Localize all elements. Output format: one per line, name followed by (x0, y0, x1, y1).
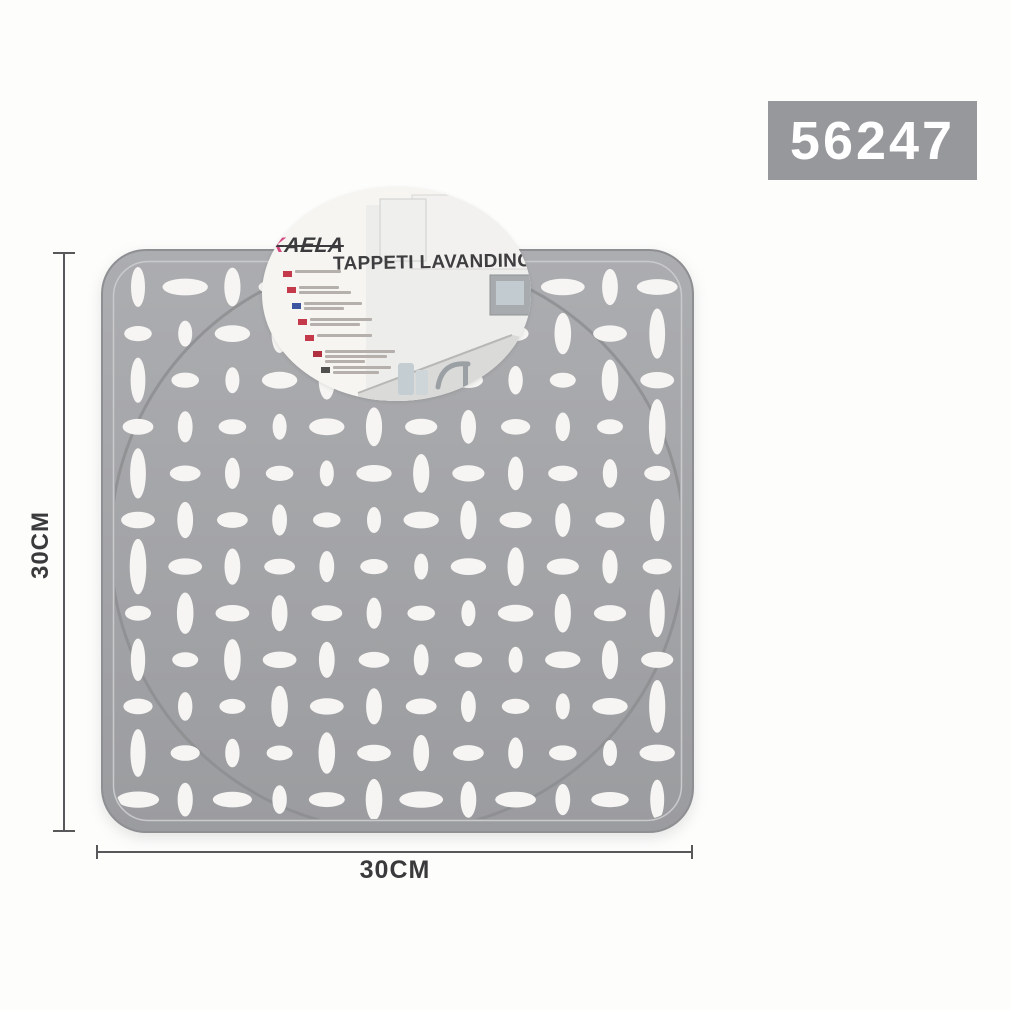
fine-print-lines (310, 318, 372, 328)
width-dimension-right-tick (691, 845, 693, 859)
flag-icon (313, 351, 322, 357)
fine-print-lines (333, 366, 391, 376)
card-info-line (321, 366, 391, 376)
fine-print-lines (299, 286, 351, 296)
flag-icon (305, 335, 314, 341)
product-code: 56247 (790, 110, 955, 172)
flag-icon (283, 271, 292, 277)
width-dimension-line (97, 851, 692, 853)
height-dimension-bottom-tick (53, 830, 75, 832)
flag-icon (287, 287, 296, 293)
height-dimension-line (63, 253, 65, 832)
card-info-line (283, 270, 341, 277)
height-dimension-label: 30CM (27, 500, 55, 590)
flag-icon (321, 367, 330, 373)
fine-print-lines (295, 270, 341, 275)
product-label-card: KAELA TAPPETI LAVANDINO (262, 187, 531, 401)
fine-print-lines (325, 350, 395, 365)
card-info-line (292, 302, 362, 312)
card-info-line (287, 286, 351, 296)
card-info-line (305, 334, 372, 341)
width-dimension-left-tick (96, 845, 98, 859)
height-dimension-top-tick (53, 252, 75, 254)
fine-print-lines (317, 334, 372, 339)
flag-icon (292, 303, 301, 309)
product-code-badge: 56247 (768, 101, 977, 180)
card-info-line (298, 318, 372, 328)
fine-print-lines (304, 302, 362, 312)
card-info-line (313, 350, 395, 365)
card-title: TAPPETI LAVANDINO (333, 250, 531, 275)
product-photo: 56247 KAELA TAPPETI LAVANDINO (0, 0, 1010, 1010)
width-dimension-label: 30CM (325, 856, 465, 885)
flag-icon (298, 319, 307, 325)
